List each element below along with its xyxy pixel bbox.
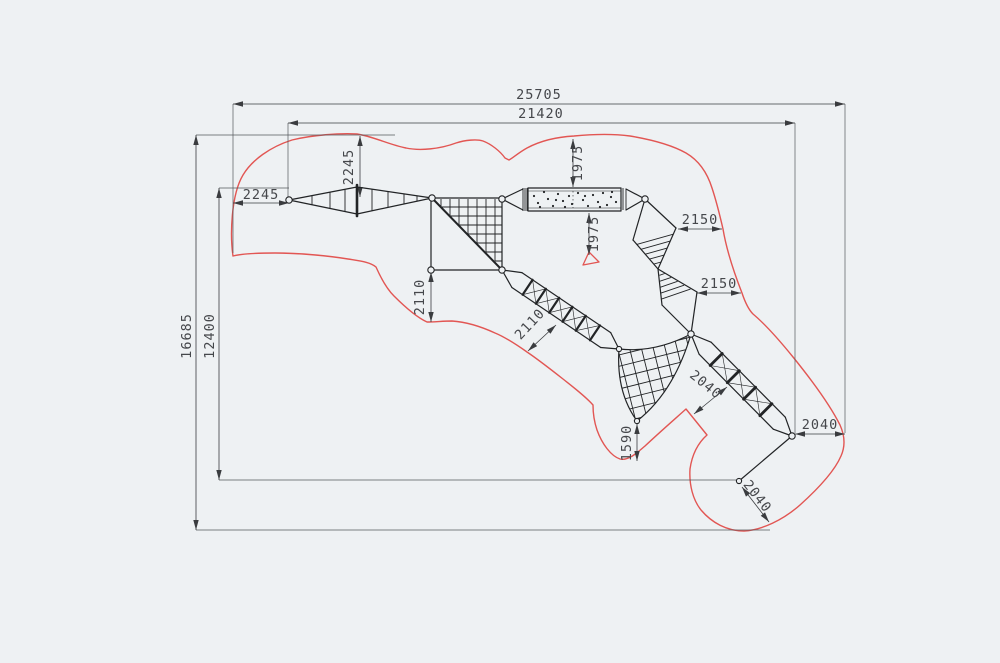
- bottom-net-module: [569, 308, 741, 451]
- dim-label-2150-lower: 2150: [701, 276, 738, 292]
- dim-ladder-clearance-diagonal: 2040: [686, 367, 727, 414]
- dim-bottom-net-clearance: 1590: [619, 424, 637, 461]
- climb-net-module: [431, 198, 502, 270]
- dim-label-2040-right: 2040: [802, 417, 839, 433]
- bridge-module: [502, 188, 645, 211]
- dim-label-1975-bottom: 1975: [586, 216, 602, 253]
- dim-bridge-top-clearance: 1975: [570, 139, 586, 187]
- dim-left-clearance: 2245: [233, 187, 289, 203]
- anchor-node-junction: [688, 331, 694, 337]
- anchor-node-mesh-top: [429, 195, 435, 201]
- net-ladder-lower: [691, 334, 792, 481]
- anchor-node-net-left: [616, 346, 621, 351]
- dim-label-2245-top: 2245: [341, 149, 357, 186]
- dim-upper-right-clearance: 2150: [678, 212, 722, 229]
- bridge-dots: [533, 191, 617, 208]
- anchor-node-bridge-left: [499, 196, 505, 202]
- dim-bottom-clearance-diagonal: 2040: [740, 477, 775, 522]
- anchor-node-net-bottom: [634, 418, 639, 423]
- dim-label-1590: 1590: [619, 425, 635, 462]
- dim-safety-zone-width: 25705: [233, 87, 845, 104]
- dim-right-clearance: 2040: [795, 417, 845, 434]
- dim-label-2110-vertical: 2110: [412, 279, 428, 316]
- dimension-extension-lines: [196, 104, 845, 530]
- anchor-node-left: [286, 197, 292, 203]
- dim-label-12400: 12400: [202, 313, 218, 359]
- dim-structure-width: 21420: [288, 106, 795, 123]
- dim-safety-zone-height: 16685: [179, 135, 196, 530]
- dim-label-2245-left: 2245: [243, 187, 280, 203]
- dim-structure-height: 12400: [202, 188, 219, 480]
- anchor-node-frame-corner: [428, 267, 434, 273]
- dim-label-2150-upper: 2150: [682, 212, 719, 228]
- dim-label-21420: 21420: [518, 106, 564, 122]
- dim-label-16685: 16685: [179, 313, 195, 359]
- technical-drawing-canvas: 25705 21420 16685 12400 2245 2245 1975 1…: [0, 0, 1000, 663]
- anchor-node-bridge-right: [642, 196, 648, 202]
- anchor-node-mesh-bottom: [499, 267, 505, 273]
- dim-lower-right-clearance: 2150: [697, 276, 741, 293]
- anchor-node-ladder-end: [789, 433, 795, 439]
- drawing-sheet: 25705 21420 16685 12400 2245 2245 1975 1…: [0, 0, 1000, 663]
- dim-bridge-bottom-clearance: 1975: [586, 213, 602, 255]
- dim-mid-clearance-vertical: 2110: [412, 272, 431, 322]
- play-structure: [286, 185, 795, 484]
- anchor-node-ground: [736, 478, 741, 483]
- dim-label-1975-top: 1975: [570, 145, 586, 182]
- rope-diamond-module: [289, 185, 432, 216]
- dim-label-2040-bottom: 2040: [740, 477, 775, 516]
- dim-label-25705: 25705: [516, 87, 562, 103]
- dim-label-2040-ladder: 2040: [686, 367, 724, 402]
- entry-arrow-marker: [583, 252, 599, 265]
